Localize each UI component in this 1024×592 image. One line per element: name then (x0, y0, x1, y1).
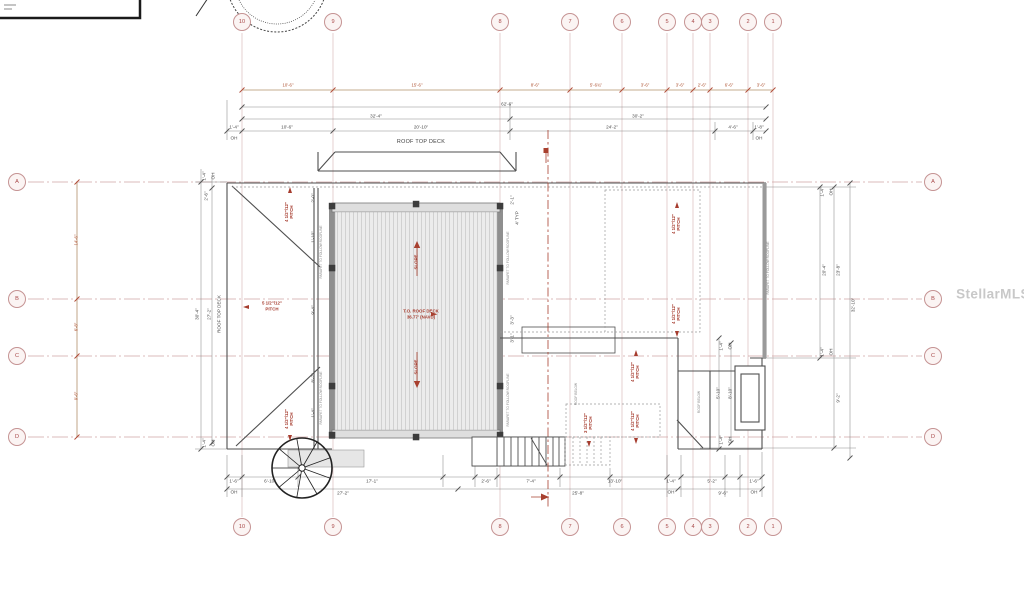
dimension-label: 1'-10" (310, 231, 315, 243)
dimension-label: 2'-0" (310, 193, 315, 202)
red-dim-top: 3'-6" (641, 84, 650, 89)
dimension-label: 4' TYP (514, 211, 519, 225)
overhang-label: OH (668, 489, 675, 494)
dimension-label: 1'-6" (229, 478, 238, 483)
dimension-label: 5'-10" (715, 387, 720, 399)
dimension-label: 20'-10" (414, 124, 428, 129)
dimension-label: 25'-8" (572, 490, 584, 495)
grid-bubble-5-top: 5 (658, 13, 676, 31)
roof-deck-elevation: 36.77' (NAVD) (407, 316, 435, 321)
dimension-label: 1'-4" (718, 341, 723, 350)
dimension-label: 1'-4" (666, 478, 675, 483)
roof-below-note: ROOF BELOW (698, 391, 702, 413)
dimension-label: 1'-4" (718, 435, 723, 444)
dimension-label: 1'-4" (819, 347, 824, 356)
pitch-arrow-down (587, 441, 591, 447)
dimension-label: 1'-4" (201, 438, 206, 447)
dimension-label: 9'-2" (835, 393, 840, 402)
pitch-arrow-down (634, 438, 638, 444)
red-dim-top: 6'-6" (725, 84, 734, 89)
roof-top-deck-label: ROOF TOP DECK (397, 140, 445, 146)
dimension-label: 1'-4" (201, 171, 206, 180)
grid-bubble-1-bottom: 1 (764, 518, 782, 536)
dimension-label: 8'-10" (727, 387, 732, 399)
grid-bubble-2-top: 2 (739, 13, 757, 31)
grid-bubble-B-left: B (8, 290, 26, 308)
dimension-label: 9'-6" (718, 490, 727, 495)
dimension-label: 24'-2" (606, 124, 618, 129)
parapet-note: PARAPET TO FOLLOW ROOFLINE (320, 225, 324, 278)
grid-bubble-7-bottom: 7 (561, 518, 579, 536)
red-dim-left: 9'-6" (75, 392, 80, 401)
pitch-label: 4 1/2"/12" PITCH (672, 214, 682, 234)
red-dim-top: 10'-6" (283, 84, 294, 89)
parapet-note: PARAPET TO FOLLOW ROOFLINE (320, 371, 324, 424)
pitch-label: 4 1/2"/12" PITCH (631, 411, 641, 431)
grid-bubble-C-left: C (8, 347, 26, 365)
dimension-label: 7'-4" (526, 478, 535, 483)
grid-bubble-4-bottom: 4 (684, 518, 702, 536)
pitch-label: 3 1/2"/12" PITCH (584, 413, 594, 433)
red-dim-top: 15'-6" (412, 84, 423, 89)
pitch-label: 4 1/2"/12" PITCH (631, 362, 641, 382)
grid-bubble-9-top: 9 (324, 13, 342, 31)
dimension-label: 2'-6" (481, 478, 490, 483)
grid-bubble-D-right: D (924, 428, 942, 446)
grid-bubble-5-bottom: 5 (658, 518, 676, 536)
dimension-label: 3'-1" (509, 333, 514, 342)
parapet-note: PARAPET TO FOLLOW ROOFLINE (507, 373, 511, 426)
grid-bubble-6-top: 6 (613, 13, 631, 31)
grid-bubble-10-bottom: 10 (233, 518, 251, 536)
pitch-arrow-up (634, 350, 638, 356)
grid-bubble-7-top: 7 (561, 13, 579, 31)
red-dim-top: 3'-6" (757, 84, 766, 89)
pitch-arrow-up (675, 202, 679, 208)
grid-bubble-2-bottom: 2 (739, 518, 757, 536)
grid-bubble-10-top: 10 (233, 13, 251, 31)
overhang-label: OH (828, 349, 833, 356)
dimension-label: 2'-6" (203, 191, 208, 200)
roof-below-note: ROOF BELOW (575, 383, 579, 405)
overhang-label: OH (210, 173, 215, 180)
red-dim-top: 2'-6" (698, 84, 707, 89)
pitch-arrow-left (243, 305, 249, 309)
dimension-label: 30'-2" (632, 113, 644, 118)
dimension-label: 4'-6" (728, 124, 737, 129)
overhang-label: OH (727, 437, 732, 444)
parapet-note: PARAPET TO FOLLOW ROOFLINE (767, 241, 771, 294)
grid-bubble-9-bottom: 9 (324, 518, 342, 536)
overhang-label: OH (751, 489, 758, 494)
pitch-label: 4 1/2"/12" PITCH (285, 409, 295, 429)
dimension-label: 30'-4" (194, 308, 199, 320)
grid-bubble-3-top: 3 (701, 13, 719, 31)
dimension-label: 32'-10" (850, 298, 855, 312)
red-dim-left: 14'-6" (75, 235, 80, 246)
grid-bubble-8-top: 8 (491, 13, 509, 31)
dimension-label: 13'-10" (608, 478, 622, 483)
dimension-label: 9'-4" (310, 305, 315, 314)
grid-bubble-A-left: A (8, 173, 26, 191)
dimension-label: 1'-4" (819, 187, 824, 196)
annotation-layer: 10'-6"15'-6"8'-6"5'-6¾"3'-6"3'-6"2'-6"6'… (0, 0, 1024, 592)
dimension-label: 1'-4" (229, 124, 238, 129)
grid-bubble-3-bottom: 3 (701, 518, 719, 536)
overhang-label: OH (210, 440, 215, 447)
grid-bubble-8-bottom: 8 (491, 518, 509, 536)
red-dim-top: 5'-6¾" (590, 84, 602, 89)
pitch-label: 4 1/2"/12" PITCH (672, 304, 682, 324)
grid-bubble-A-right: A (924, 173, 942, 191)
dimension-label: 3'-3" (509, 315, 514, 324)
red-dim-left: 6'-8" (75, 323, 80, 332)
watermark: StellarMLS (956, 287, 1024, 302)
parapet-note: PARAPET TO FOLLOW ROOFLINE (507, 231, 511, 284)
dimension-label: 20'-4" (821, 264, 826, 276)
grid-bubble-1-top: 1 (764, 13, 782, 31)
dimension-label: 6'-10" (264, 478, 276, 483)
grid-bubble-C-right: C (924, 347, 942, 365)
overhang-label: OH (756, 135, 763, 140)
dimension-label: 23'-8" (835, 264, 840, 276)
pitch-arrow-down (288, 435, 292, 441)
pitch-label: PITCH (265, 308, 278, 313)
dimension-label: 17'-1" (366, 478, 378, 483)
grid-bubble-D-left: D (8, 428, 26, 446)
overhang-label: OH (231, 135, 238, 140)
slope-label: SLOPE (415, 255, 420, 270)
grid-bubble-4-top: 4 (684, 13, 702, 31)
red-dim-top: 8'-6" (531, 84, 540, 89)
pitch-arrow-down (675, 331, 679, 337)
dimension-label: 8'-2" (310, 373, 315, 382)
grid-bubble-B-right: B (924, 290, 942, 308)
pitch-arrow-up (288, 187, 292, 193)
overhang-label: OH (828, 189, 833, 196)
slope-label: SLOPE (415, 360, 420, 375)
grid-bubble-6-bottom: 6 (613, 518, 631, 536)
dimension-label: 27'-2" (206, 308, 211, 320)
pitch-label: 4 1/2"/12" PITCH (285, 202, 295, 222)
dimension-label: 1'-8" (754, 124, 763, 129)
dimension-label: 10'-6" (281, 124, 293, 129)
red-dim-top: 3'-6" (676, 84, 685, 89)
dimension-label: 1'-6" (749, 478, 758, 483)
dimension-label: 1'-4" (310, 408, 315, 417)
overhang-label: OH (727, 343, 732, 350)
dimension-label: 27'-2" (337, 490, 349, 495)
roof-top-deck-side-label: ROOF TOP DECK (216, 295, 221, 333)
dimension-label: 2'-1" (509, 195, 514, 204)
roof-plan-sheet: 10'-6"15'-6"8'-6"5'-6¾"3'-6"3'-6"2'-6"6'… (0, 0, 1024, 592)
dimension-label: 32'-4" (370, 113, 382, 118)
overhang-label: OH (231, 489, 238, 494)
dimension-label: 62'-6" (501, 101, 513, 106)
dimension-label: 5'-2" (707, 478, 716, 483)
